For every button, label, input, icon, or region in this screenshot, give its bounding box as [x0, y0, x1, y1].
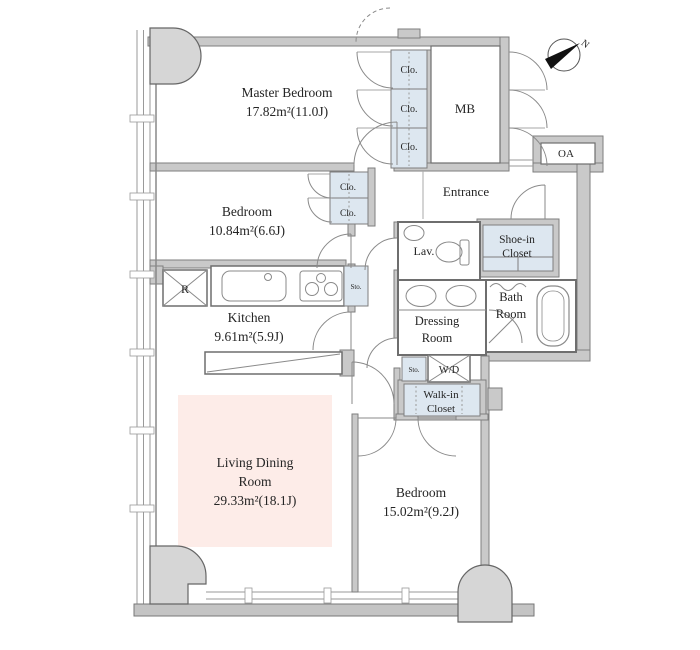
outdoor-air-label: OA [558, 148, 574, 160]
washer-dryer-label: W/D [439, 365, 460, 376]
pillar-bottom-right [458, 565, 512, 622]
kitchen-area: 9.61m²(5.9J) [214, 329, 283, 344]
lavatory-door [365, 238, 397, 270]
storage-label-2: Sto. [350, 283, 361, 291]
living-dining-door [352, 362, 394, 404]
bath-room-label-line1: Bath [499, 290, 523, 304]
storage-label-1: Sto. [408, 366, 419, 374]
dressing-room-door [367, 338, 397, 368]
bedroom2-area: 10.84m²(6.6J) [209, 223, 285, 238]
living-dining-highlight [178, 395, 332, 547]
north-label: N [579, 38, 591, 51]
meter-box-door-panels [509, 90, 545, 128]
front-door-threshold [509, 160, 533, 166]
walk-in-closet-door [418, 418, 456, 456]
closet-label-3: Clo. [401, 142, 418, 153]
floor-plan: N Master Bedroom 17.82m²(11.0J) Bedroom … [0, 0, 700, 650]
bedroom2-label: Bedroom [222, 204, 273, 219]
shoe-in-closet-label-line2: Closet [502, 248, 532, 260]
master-bedroom-area: 17.82m²(11.0J) [246, 104, 328, 119]
dressing-room-label-line2: Room [422, 331, 453, 345]
shoe-closet-door [511, 185, 545, 219]
living-dining-label-line2: Room [238, 474, 272, 489]
closet-label-5: Clo. [340, 209, 356, 219]
closet-label-4: Clo. [340, 183, 356, 193]
dressing-room-label-line1: Dressing [415, 314, 460, 328]
compass: N [545, 38, 591, 71]
lavatory-room [398, 222, 480, 280]
kitchen-label: Kitchen [228, 310, 271, 325]
kitchen-door [313, 312, 351, 350]
bath-room-label-line2: Room [496, 307, 527, 321]
living-dining-label-line1: Living Dining [217, 455, 294, 470]
pillar-bottom-left [150, 546, 206, 604]
master-bedroom-label: Master Bedroom [241, 85, 333, 100]
walk-in-closet-label-line1: Walk-in [423, 389, 459, 401]
bedroom3-label: Bedroom [396, 485, 447, 500]
kitchen-counter [211, 266, 344, 306]
living-dining-area: 29.33m²(18.1J) [214, 493, 297, 508]
closet-label-2: Clo. [401, 104, 418, 115]
lavatory-label: Lav. [414, 244, 435, 258]
bedroom3-door [358, 418, 396, 456]
refrigerator-label: R [181, 282, 189, 296]
bedroom3-area: 15.02m²(9.2J) [383, 504, 459, 519]
meter-box-label: MB [455, 101, 476, 116]
walk-in-closet-label-line2: Closet [427, 403, 455, 415]
shoe-in-closet-label-line1: Shoe-in [499, 234, 535, 246]
entrance-label: Entrance [443, 184, 489, 199]
closet-label-1: Clo. [401, 65, 418, 76]
pillar-top-left [150, 28, 201, 84]
master-closet-doors [357, 52, 393, 164]
